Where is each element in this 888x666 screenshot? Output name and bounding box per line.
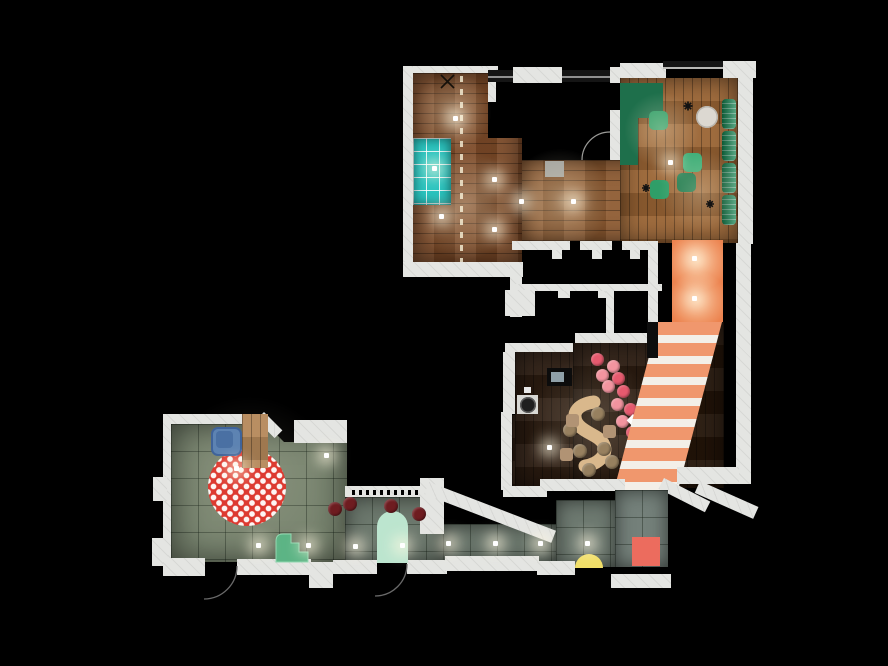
bathroom-teal-tiles	[413, 138, 451, 205]
bottom-wall-1	[163, 558, 205, 576]
room-b-lights-1	[519, 199, 524, 204]
bottom-pier	[309, 562, 333, 588]
bench-cushions-2	[722, 131, 736, 161]
corridor-lights-1	[256, 543, 261, 548]
window-sill-1	[513, 67, 562, 83]
cafe-white-box	[524, 387, 531, 393]
room-a-lights-3	[492, 177, 497, 182]
room-a-dashed-line	[460, 76, 463, 262]
cafe-bottom-wall-right	[677, 467, 739, 484]
blackrooms-top-wall	[512, 241, 652, 250]
cafe-bottom-wall-left	[540, 479, 625, 491]
bottom-wall-3	[333, 560, 377, 574]
floor-plan-stage	[0, 0, 888, 666]
dark-red-stools-3	[384, 499, 398, 513]
bottom-wall-2	[237, 559, 311, 575]
playroom-top-wall-right	[294, 420, 347, 443]
dark-red-stools-4	[412, 507, 426, 521]
coat-hooks-row-9	[408, 490, 411, 495]
dark-red-stools-1	[328, 502, 342, 516]
wall-right-upper	[736, 61, 753, 244]
corridor-lights-3	[324, 453, 329, 458]
side-table-round	[520, 397, 536, 413]
coat-hooks-row-6	[387, 490, 390, 495]
coat-hooks-row-10	[415, 490, 418, 495]
tan-stools-4	[597, 442, 611, 456]
pillar-stub-3	[630, 250, 640, 259]
corridor-lights-6	[446, 541, 451, 546]
coat-hooks-row-3	[366, 490, 369, 495]
landing-lights-1	[692, 256, 697, 261]
window-top-right-sill	[663, 67, 723, 69]
room-a-lights-2	[432, 166, 437, 171]
bottom-wall-4	[407, 560, 447, 574]
room-b-lights-2	[571, 199, 576, 204]
corridor-lights-7	[493, 541, 498, 546]
room-b-door-wall	[610, 110, 620, 160]
pink-stools-5	[602, 380, 615, 393]
orange-landing	[672, 240, 723, 324]
undefined	[658, 150, 742, 234]
tan-stools-1	[591, 407, 605, 421]
bottom-wall-5	[445, 556, 539, 571]
coat-hooks-row-4	[373, 490, 376, 495]
pink-stools-1	[591, 353, 604, 366]
pillar-stub-2	[592, 250, 602, 259]
wall-left-upper	[403, 66, 413, 274]
blackrooms-bottom-wall-2	[575, 333, 657, 343]
room-a-lights-1	[453, 116, 458, 121]
polka-rug-light-1	[234, 466, 239, 471]
corridor-lights-9	[585, 541, 590, 546]
coat-hooks-row-2	[359, 490, 362, 495]
pink-stools-6	[617, 385, 630, 398]
wall-right-stairwell	[736, 244, 751, 484]
desk-screen	[551, 372, 564, 382]
coat-hooks-row-7	[394, 490, 397, 495]
cafe-light-1	[547, 445, 552, 450]
wall-bottom-room-a	[403, 262, 523, 277]
pillar-stub-1	[552, 250, 562, 259]
pillar-stub-4	[558, 291, 570, 298]
wood-plank-table	[242, 414, 268, 468]
corridor-lights-8	[538, 541, 543, 546]
wall-top-mid	[620, 63, 666, 78]
tan-stools-6	[605, 455, 619, 469]
bottom-wall-6	[537, 561, 575, 575]
blackrooms-door-gap-1	[570, 241, 580, 250]
blackrooms-corner	[505, 290, 535, 316]
coat-hooks-row-1	[352, 490, 355, 495]
coat-hooks-row-8	[401, 490, 404, 495]
tan-square-3	[560, 448, 573, 461]
dark-red-stools-2	[343, 497, 357, 511]
coat-hooks-row-5	[380, 490, 383, 495]
corridor-lights-4	[353, 544, 358, 549]
cafe-left-wall-2	[501, 412, 512, 490]
tan-stools-5	[582, 463, 596, 477]
blue-armchair-seat	[216, 431, 233, 448]
cafe-left-wall-1	[503, 352, 515, 414]
room-a-lights-4	[439, 214, 444, 219]
landing-lights-2	[692, 296, 697, 301]
pilaster-1	[153, 477, 167, 501]
tan-square-1	[566, 414, 579, 427]
corridor-lights-5	[400, 543, 405, 548]
room-a-lights-5	[492, 227, 497, 232]
stair-side-steps	[647, 322, 658, 358]
mint-arch-door	[377, 511, 408, 563]
pink-stools-7	[611, 398, 624, 411]
corridor-lights-2	[306, 543, 311, 548]
blackrooms-door-gap-2	[612, 241, 622, 250]
tan-square-2	[603, 425, 616, 438]
tan-stools-3	[573, 444, 587, 458]
pink-stools-2	[607, 360, 620, 373]
undefined	[508, 148, 612, 252]
bottom-wall-7	[611, 574, 671, 588]
coral-mat	[632, 537, 660, 566]
bench-cushions-1	[722, 99, 736, 129]
